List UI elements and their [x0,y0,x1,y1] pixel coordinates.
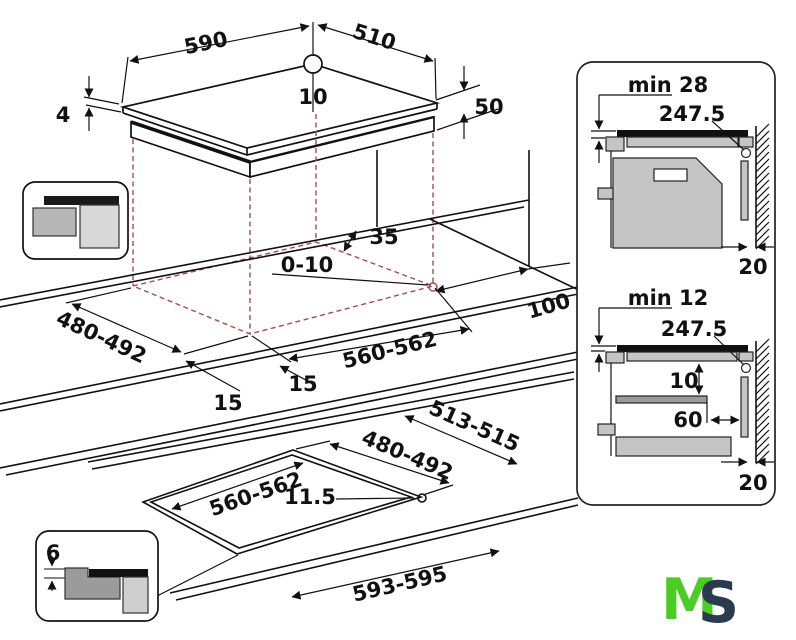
fig2-cable-outlet [742,364,751,373]
fig2-shelf [616,396,707,403]
fig2-left-bracket [606,352,624,363]
panel-bottom-clearance: 10 [669,369,698,393]
panel-bottom-setback: 60 [673,408,702,432]
fig2-right-bracket [739,352,753,361]
fig2-glass [617,345,748,352]
dim-flush-ledge: 11.5 [284,485,336,509]
fig1-left-bracket [606,137,624,151]
panel-top-cable-dim: 247.5 [659,102,725,126]
fig1-cable-outlet [742,149,751,158]
side-clearance-panel: min 28 247.5 20 mi [577,62,775,505]
inset2-cabinet-box [123,577,148,613]
dim-corner-radius: 0-10 [281,253,334,277]
inset-oven-install-icon [23,182,128,259]
flush-cutout-inner [151,455,411,548]
fig1-right-bracket [739,137,753,147]
dim-flush-outer-width: 513-515 [425,396,523,457]
ms-logo: M S [661,567,739,636]
dim-hole-offset: 10 [298,85,327,109]
dim-hob-width: 590 [182,27,230,59]
fig1-oven-vent [654,169,687,181]
panel-top-title: min 28 [628,73,709,97]
dim-cutout-width: 480-492 [53,306,151,368]
inset2-glass-bar [89,569,148,577]
dim-hob-depth: 510 [350,19,399,55]
fig1-body [627,137,738,147]
panel-bottom-cable-dim: 247.5 [661,317,727,341]
logo-letter-s: S [698,570,739,636]
panel-top-wall-gap: 20 [738,255,767,279]
flush-cutout-outer [143,450,421,554]
dim-body-height: 50 [474,95,503,119]
fig1-rear-spacer [741,161,748,220]
inset1-hob-bar [44,196,119,205]
fig2-body [627,352,737,361]
dim-front-min: 15 [213,391,242,415]
fig2-left-tab [598,424,615,435]
installation-diagram-page: 590 510 10 4 50 35 0-10 480-492 15 15 5 [0,0,796,640]
inset1-cabinet-box [80,205,119,248]
dim-rear-clearance: 35 [369,225,398,249]
inset-flush-install-icon: 6 [36,531,158,621]
fig2-rear-spacer [741,377,748,437]
panel-bottom-wall-gap: 20 [738,471,767,495]
inset1-oven-box [33,208,76,236]
dim-side-min: 15 [288,372,317,396]
panel-bottom-title: min 12 [628,286,709,310]
installation-diagram: 590 510 10 4 50 35 0-10 480-492 15 15 5 [0,0,796,640]
dim-recess-depth: 6 [46,541,61,565]
fig2-drawer [616,437,731,456]
cable-hole-marker [304,55,322,73]
dim-cutout-length: 560-562 [340,327,439,374]
dim-flush-outer-length: 593-595 [350,561,449,606]
dim-flush-width: 480-492 [358,425,456,485]
dim-right-clearance: 100 [524,288,573,323]
dim-glass-thickness: 4 [56,103,71,127]
